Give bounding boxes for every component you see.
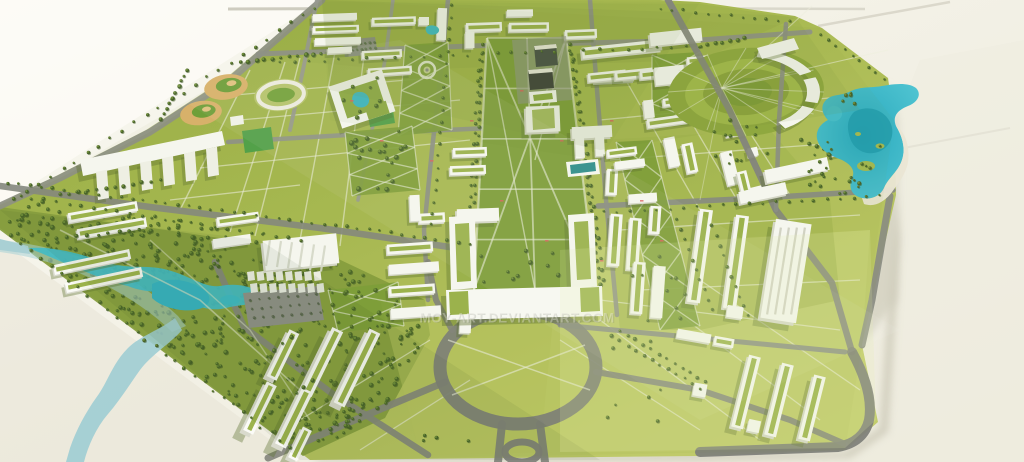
svg-text:MOY-ART.DEVIANTART.COM: MOY-ART.DEVIANTART.COM: [419, 311, 614, 326]
